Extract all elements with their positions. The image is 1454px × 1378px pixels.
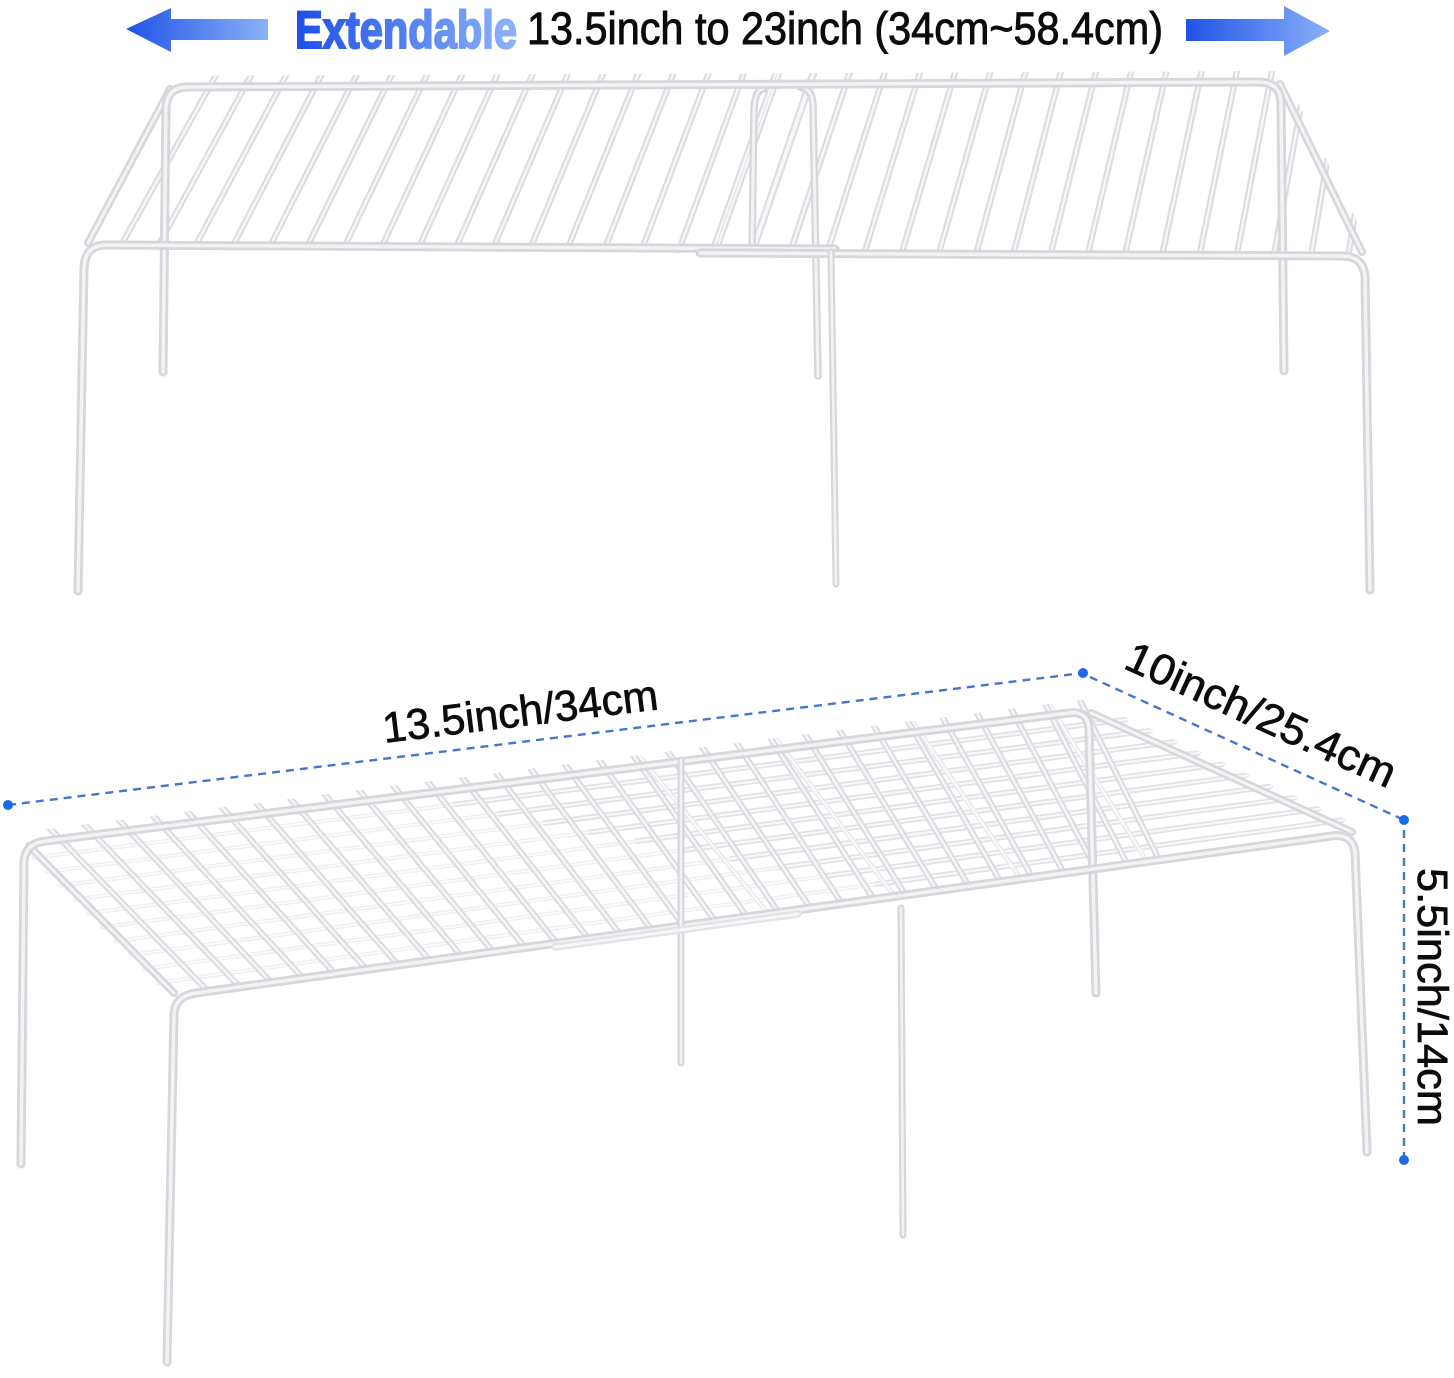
svg-text:13.5inch to 23inch (34cm~58.4c: 13.5inch to 23inch (34cm~58.4cm)	[527, 3, 1163, 54]
svg-text:Extendable: Extendable	[295, 1, 517, 60]
svg-text:5.5inch/14cm: 5.5inch/14cm	[1408, 868, 1454, 1126]
